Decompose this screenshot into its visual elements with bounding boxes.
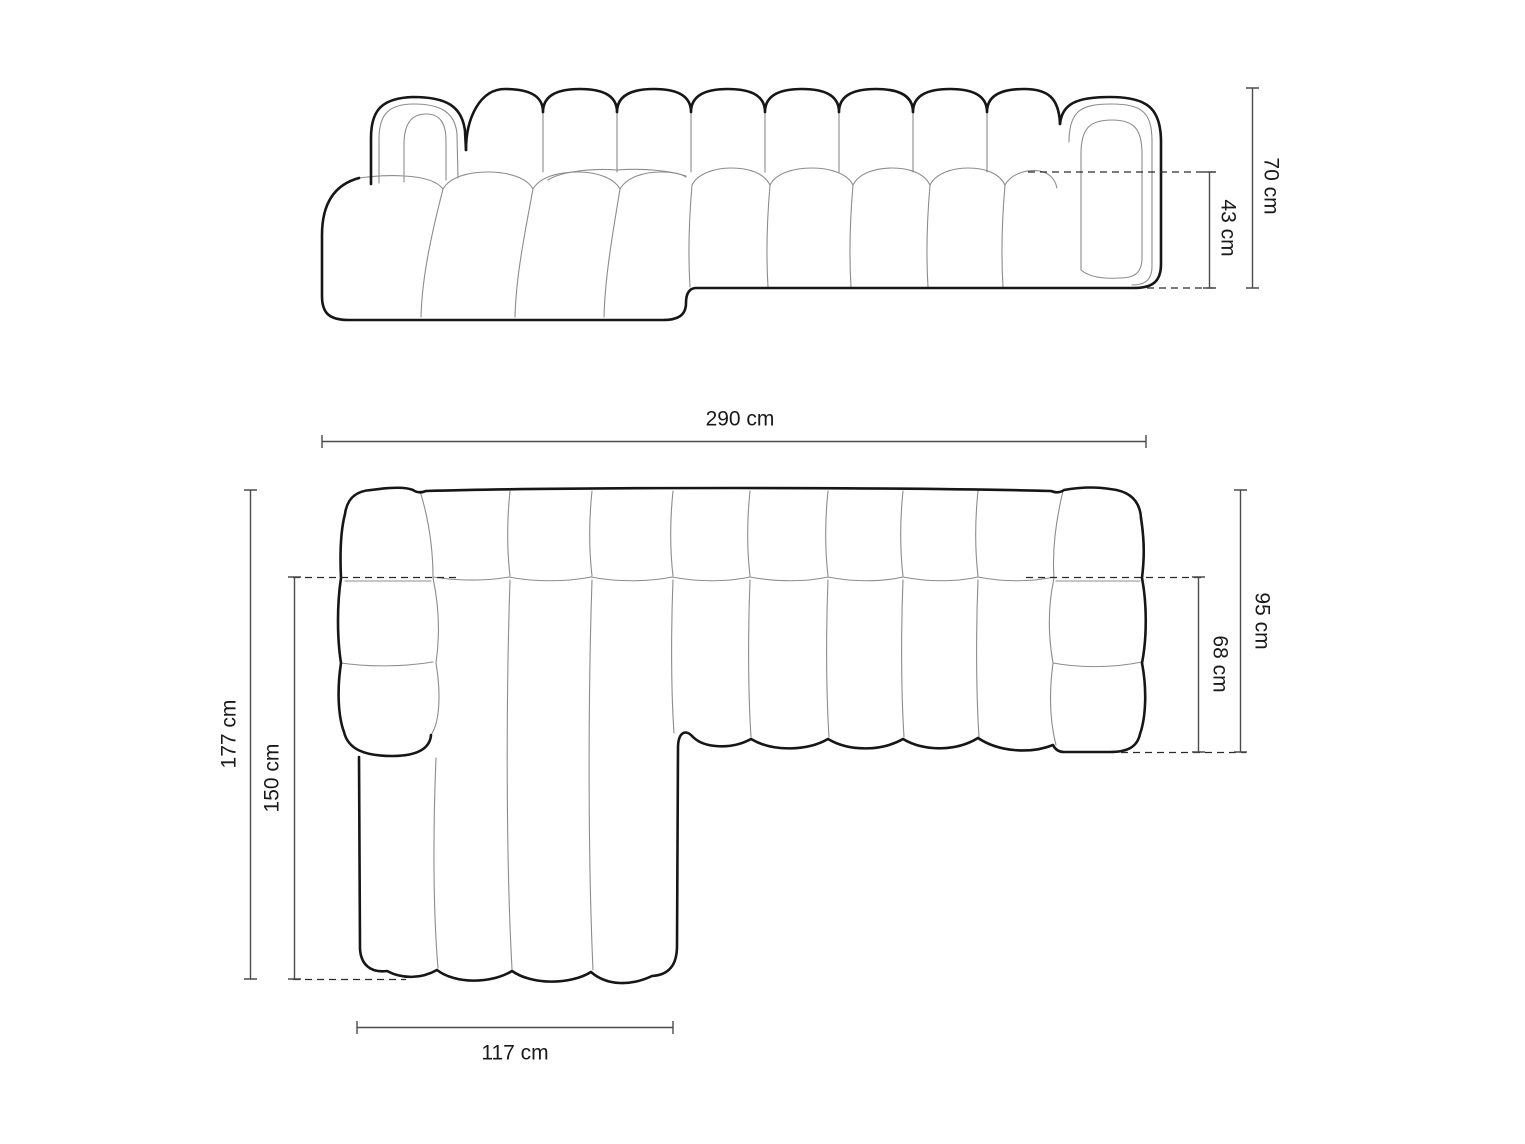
top-body-and-chaise-outline [359,518,1146,983]
total-depth-label: 95 cm [1251,592,1274,649]
seat-height-dimension-line [1203,172,1216,288]
front-view: 70 cm 43 cm 290 cm [322,88,1283,448]
top-left-arm-seams [341,491,439,735]
seat-depth-dimension-line [1192,577,1205,752]
top-right-arm-seams [1049,491,1142,745]
top-left-armrest-outline [338,490,431,756]
front-left-armrest-outline [371,97,466,184]
total-width-dimension-line [322,435,1146,448]
total-height-label: 70 cm [1260,157,1283,214]
top-chaise-channel-seams [434,580,593,970]
top-back-edge-outline [371,488,1141,518]
front-back-channel-seams [543,112,987,172]
total-width-label: 290 cm [706,408,775,431]
front-chaise-cushion-seams [359,172,686,317]
top-seat-channel-seams [672,580,979,737]
chaise-width-dimension-line [357,1021,673,1034]
chaise-width-label: 117 cm [481,1042,548,1065]
sofa-dimension-diagram: 70 cm 43 cm 290 cm 177 cm 150 cm 95 cm 6… [0,0,1525,1144]
top-backrest-boundary-seam [433,577,1054,581]
front-seat-cushion-seams [689,168,1057,287]
chaise-inner-depth-dimension-line [288,577,301,979]
front-right-arm-inner-seams [1069,104,1152,285]
top-view: 177 cm 150 cm 95 cm 68 cm 117 cm [218,488,1274,1065]
total-depth-dimension-line [1234,490,1247,752]
seat-depth-label: 68 cm [1209,635,1232,692]
seat-height-label: 43 cm [1217,199,1240,256]
front-backrest-scallops [466,89,1060,150]
chaise-total-depth-dimension-line [244,490,257,979]
chaise-inner-depth-label: 150 cm [261,744,284,813]
front-body-and-chaise-outline [322,97,1161,320]
top-backrest-channel-seams [508,491,978,576]
front-left-arm-inner-seams [379,104,458,183]
chaise-total-depth-label: 177 cm [218,700,241,769]
total-height-dimension-line [1246,88,1259,288]
